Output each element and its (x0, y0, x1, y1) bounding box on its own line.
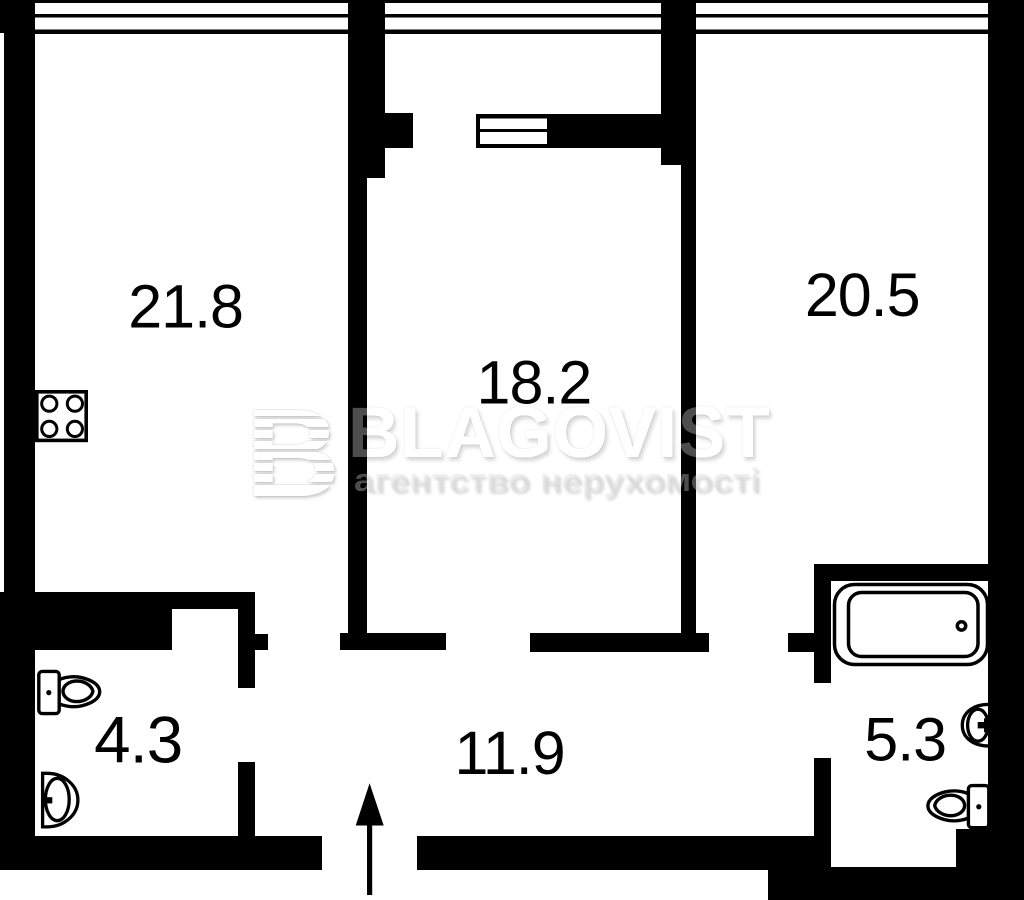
svg-text:21.8: 21.8 (128, 272, 243, 340)
svg-text:5.3: 5.3 (864, 705, 946, 773)
svg-text:20.5: 20.5 (805, 261, 920, 329)
svg-text:4.3: 4.3 (94, 703, 182, 776)
svg-text:11.9: 11.9 (454, 719, 564, 787)
